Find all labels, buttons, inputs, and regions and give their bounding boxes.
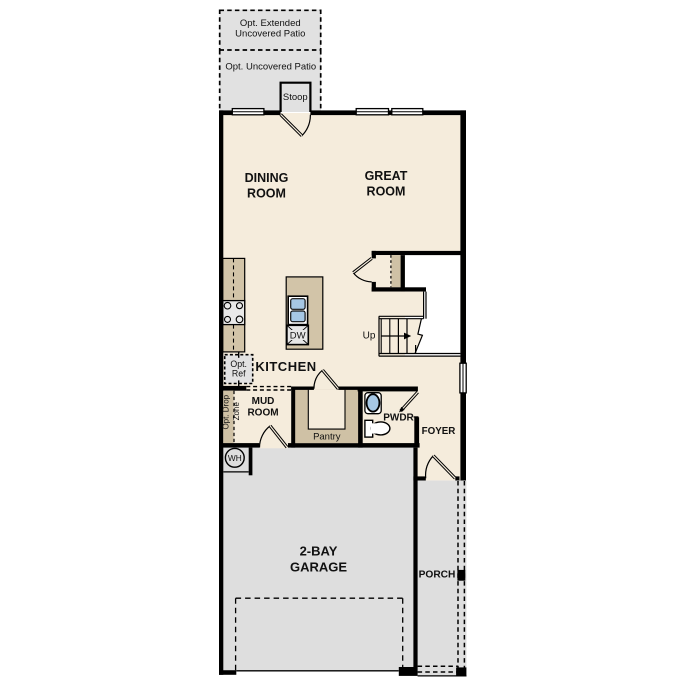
svg-text:Zone: Zone xyxy=(232,402,241,421)
svg-text:Opt. Extended: Opt. Extended xyxy=(240,18,301,29)
svg-text:Ref: Ref xyxy=(232,368,246,378)
svg-text:Uncovered Patio: Uncovered Patio xyxy=(235,29,305,40)
svg-text:FOYER: FOYER xyxy=(422,426,456,437)
svg-text:ROOM: ROOM xyxy=(247,187,286,201)
svg-text:WH: WH xyxy=(228,453,242,463)
svg-text:Stoop: Stoop xyxy=(283,92,308,103)
svg-text:Opt. Drop: Opt. Drop xyxy=(222,394,231,429)
svg-text:Opt. Uncovered Patio: Opt. Uncovered Patio xyxy=(225,62,316,73)
svg-text:KITCHEN: KITCHEN xyxy=(255,359,316,374)
svg-text:DW: DW xyxy=(290,331,306,342)
svg-text:2-BAY: 2-BAY xyxy=(300,543,338,558)
svg-text:GREAT: GREAT xyxy=(365,169,408,183)
svg-text:MUD: MUD xyxy=(252,396,275,407)
svg-text:Pantry: Pantry xyxy=(313,432,341,443)
svg-text:PORCH: PORCH xyxy=(419,570,456,581)
svg-text:GARAGE: GARAGE xyxy=(290,559,347,574)
svg-text:ROOM: ROOM xyxy=(367,185,406,199)
svg-text:DINING: DINING xyxy=(245,171,289,185)
svg-text:Up: Up xyxy=(363,331,376,342)
svg-text:ROOM: ROOM xyxy=(247,408,278,419)
svg-text:PWDR: PWDR xyxy=(383,412,414,423)
